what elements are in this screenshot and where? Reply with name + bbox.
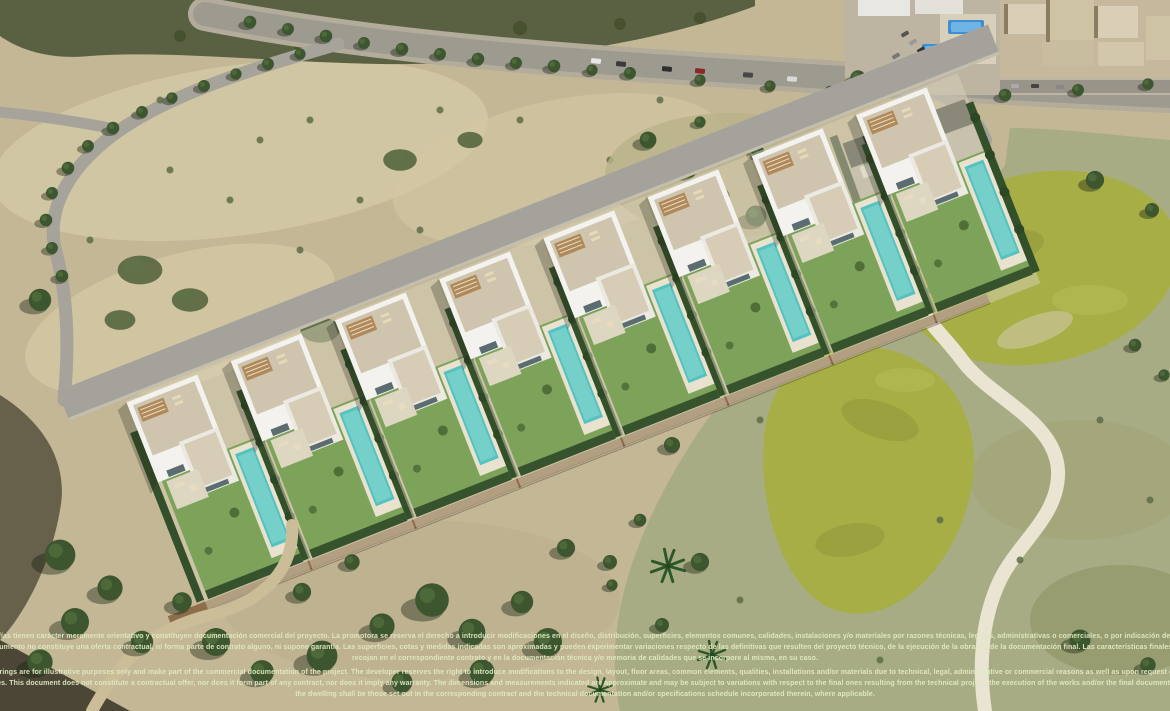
- scene-svg: [0, 0, 1170, 711]
- aerial-render-image: Los presentes planos e infografías tiene…: [0, 0, 1170, 711]
